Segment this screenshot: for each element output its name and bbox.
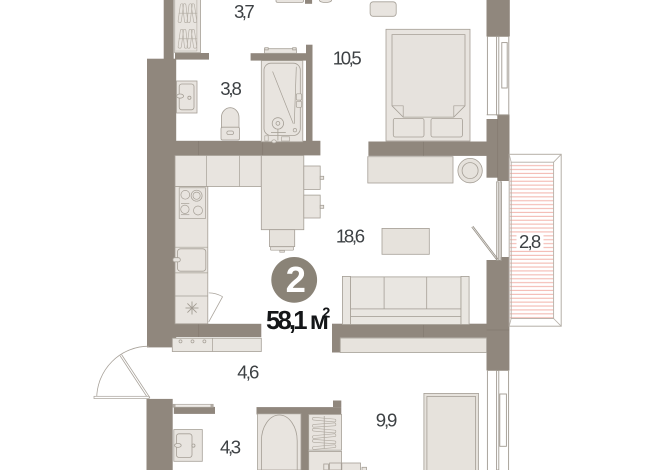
- svg-text:3,8: 3,8: [220, 78, 242, 99]
- svg-text:10,5: 10,5: [333, 47, 362, 68]
- svg-text:3,7: 3,7: [234, 1, 255, 22]
- svg-text:18,6: 18,6: [336, 226, 365, 247]
- svg-text:2,8: 2,8: [519, 231, 541, 252]
- svg-text:4,3: 4,3: [220, 436, 241, 457]
- svg-text:4,6: 4,6: [237, 362, 259, 383]
- svg-text:2: 2: [286, 259, 306, 300]
- svg-text:9,9: 9,9: [376, 410, 398, 431]
- svg-text:2: 2: [322, 306, 330, 322]
- svg-text:58,1: 58,1: [266, 307, 308, 335]
